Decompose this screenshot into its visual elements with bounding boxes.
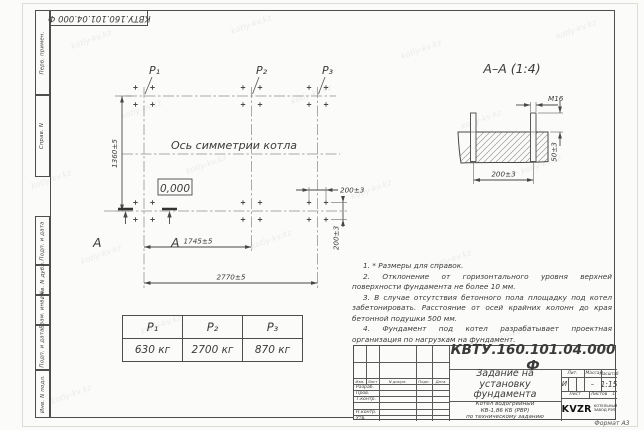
level-mark: 0,000: [160, 183, 190, 195]
product-line: Котел водогрейный: [476, 401, 535, 408]
row-utv: Утв.: [354, 415, 381, 421]
dim-2770: 2770±5: [217, 273, 246, 282]
section-title: А–А (1:4): [482, 61, 540, 76]
product-line: по техническому заданию: [466, 414, 544, 421]
sheets-cell: Листов 1: [589, 391, 617, 398]
doc-title-line: фундамента: [474, 390, 537, 400]
margin-label: Справ. N: [40, 123, 46, 149]
load-table-value: 870 кг: [243, 339, 302, 361]
row-tkontr: Т.контр.: [354, 396, 381, 402]
hdr-date: Дата: [432, 378, 449, 384]
p1-label: P₁: [149, 64, 160, 77]
symmetry-axis-label: Ось симметрии котла: [171, 139, 297, 152]
margin-cell-perv-primen: Перв. примен.: [35, 10, 50, 95]
margin-label: Подп. и дата: [40, 328, 46, 367]
p-label-leaders: [145, 77, 325, 94]
dim-200-section: 200±3: [491, 170, 516, 179]
format-label: Формат А3: [580, 420, 644, 427]
load-table-header: P₂: [183, 316, 243, 339]
dim-m16: М16: [548, 94, 564, 103]
sheet-label: Лист: [561, 391, 589, 398]
margin-cell-inv-podl: Инв. N подл.: [35, 370, 50, 418]
load-table-value: 630 кг: [123, 339, 183, 361]
company-name: КОТЕЛЬНЫЙ ЗАВОД РЭП: [594, 405, 618, 413]
anchor-bolt: [471, 113, 477, 162]
p3-label: P₃: [322, 64, 334, 77]
section-letter-a1: А: [92, 235, 102, 250]
load-table-header: P₃: [243, 316, 302, 339]
dim-50: 50±3: [550, 142, 559, 162]
title-block-product: Котел водогрейный КВ-1,86 КБ (РВР) по те…: [449, 401, 561, 421]
sheets-value: 1: [612, 392, 615, 397]
hdr-doc: N докум.: [379, 378, 416, 384]
note-3: 3. В случае отсутствия бетонного пола пл…: [352, 293, 612, 325]
technical-notes: 1. * Размеры для справок. 2. Отклонение …: [352, 261, 612, 346]
margin-label: Перв. примен.: [40, 31, 46, 74]
concrete-hatch: [446, 130, 588, 170]
extension-lines: [115, 96, 563, 220]
title-block: КВТУ.160.101.04.000 Ф Задание на установ…: [353, 345, 616, 420]
margin-cell-vzam-inv: Взам. инв. N: [35, 295, 50, 325]
margin-cell-podp-data-1: Подп. и дата: [35, 216, 50, 265]
note-2: 2. Отклонение от горизонтального уровня …: [352, 272, 612, 293]
margin-cell-sprav-n: Справ. N: [35, 95, 50, 177]
flipped-doc-number: КВТУ.160.101.04.000 Ф: [48, 13, 151, 23]
load-table: P₁ P₂ P₃ 630 кг 2700 кг 870 кг: [122, 315, 303, 362]
load-table-header: P₁: [123, 316, 183, 339]
company-name-line: ЗАВОД РЭП: [594, 409, 618, 413]
dim-bolt-x: 200±3: [340, 186, 365, 195]
title-block-doc-number: КВТУ.160.101.04.000 Ф: [449, 346, 617, 369]
mass-label: Масса: [584, 369, 601, 377]
note-1: 1. * Размеры для справок.: [352, 261, 612, 272]
margin-cell-podp-data-2: Подп. и дата: [35, 325, 50, 370]
margin-label: Взам. инв. N: [40, 291, 46, 328]
dim-1360: 1360±5: [110, 139, 119, 168]
scale-value: 1:15: [601, 377, 617, 391]
scale-label: Масштаб: [601, 369, 617, 377]
dim-1745: 1745±5: [184, 237, 213, 246]
section-view: [446, 113, 588, 170]
sheets-label: Листов: [591, 392, 607, 397]
margin-label: Подп. и дата: [40, 221, 46, 260]
p2-label: P₂: [256, 64, 268, 77]
lit-value: И: [561, 377, 568, 391]
flipped-doc-number-stamp: КВТУ.160.101.04.000 Ф: [50, 10, 148, 26]
mass-value: –: [584, 377, 601, 391]
product-line: КВ-1,86 КБ (РВР): [481, 408, 530, 415]
plan-bolt-marks: [133, 85, 328, 221]
margin-label: Инв. N подл.: [40, 375, 46, 413]
title-block-doc-title: Задание на установку фундамента: [449, 369, 561, 401]
load-table-value: 2700 кг: [183, 339, 243, 361]
company-logo-block: KVZR КОТЕЛЬНЫЙ ЗАВОД РЭП: [561, 398, 616, 420]
axis-lines: [104, 87, 347, 288]
dim-bolt-y: 200±3: [332, 225, 341, 250]
anchor-bolt: [531, 113, 537, 162]
company-logo-text: KVZR: [562, 404, 592, 415]
section-letter-a2: А: [170, 235, 180, 250]
hdr-sign: Подп.: [416, 378, 432, 384]
lit-label: Лит.: [561, 369, 584, 377]
